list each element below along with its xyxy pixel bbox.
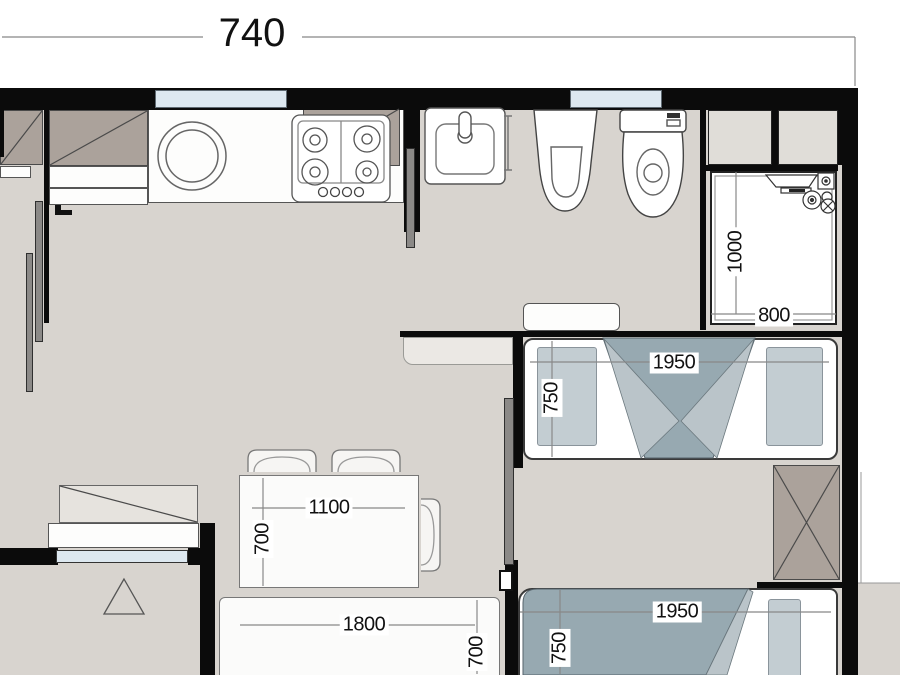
kitchen-upper-cabinet-left bbox=[49, 110, 148, 166]
dim-bed2-width: 750 bbox=[550, 629, 571, 667]
balcony-desk bbox=[59, 485, 198, 523]
wall-left-edge bbox=[0, 110, 4, 157]
wardrobe-x bbox=[773, 465, 840, 580]
dim-shower-depth: 1000 bbox=[726, 228, 747, 277]
wall-bath-shower bbox=[700, 88, 706, 330]
dim-table-width: 700 bbox=[253, 520, 274, 558]
floor-plan: 740 1000 800 1950 750 1100 700 1800 700 … bbox=[0, 0, 900, 675]
sofa-bed bbox=[219, 597, 500, 675]
wall-left-partition bbox=[44, 110, 49, 323]
outside-lines bbox=[858, 472, 900, 583]
sliding-door-bath bbox=[406, 148, 415, 248]
dim-shower-width: 800 bbox=[755, 306, 793, 327]
wall-under-wardrobe bbox=[757, 582, 842, 588]
wall-top bbox=[0, 88, 858, 110]
night-shelf bbox=[523, 303, 620, 331]
dim-overall-width: 740 bbox=[207, 12, 298, 54]
kitchen-shelf-row1 bbox=[49, 166, 148, 188]
window-top-1 bbox=[155, 90, 287, 108]
left-room-shelf bbox=[0, 166, 31, 178]
floor-outside-right bbox=[858, 583, 900, 675]
kitchen-upper-cabinet-right bbox=[303, 108, 400, 166]
wall-right bbox=[842, 88, 858, 675]
dim-bed2-length: 1950 bbox=[653, 602, 702, 623]
dim-bed1-length: 1950 bbox=[650, 353, 699, 374]
bed2-pillow bbox=[768, 599, 801, 675]
dim-bed1-width: 750 bbox=[542, 379, 563, 417]
duct-shaft-right bbox=[778, 110, 838, 165]
wall-niche bbox=[499, 570, 513, 591]
left-room-cabinet bbox=[0, 110, 43, 165]
wall-shower-band bbox=[703, 165, 838, 171]
bed1-pillow-right bbox=[766, 347, 823, 446]
window-top-2 bbox=[570, 90, 662, 108]
wall-duct-cap bbox=[838, 110, 842, 165]
window-sill-band bbox=[48, 523, 199, 548]
wall-bedroom1 bbox=[513, 331, 523, 468]
hall-shelf bbox=[403, 337, 513, 365]
wall-bath-bottom bbox=[400, 331, 858, 337]
wall-balcony-left bbox=[0, 548, 58, 565]
window-balcony bbox=[56, 550, 188, 563]
sliding-door-leftroom-1 bbox=[35, 201, 43, 342]
dim-sofa-width: 700 bbox=[467, 633, 488, 671]
wall-duct-divider bbox=[772, 110, 778, 165]
dim-sofa-length: 1800 bbox=[340, 615, 389, 636]
kitchen-shelf-row2 bbox=[49, 188, 148, 205]
dim-table-length: 1100 bbox=[305, 498, 352, 519]
sliding-door-leftroom-2 bbox=[26, 253, 33, 392]
wall-balcony-column bbox=[200, 523, 215, 675]
duct-shaft-left bbox=[708, 110, 772, 165]
sliding-door-bedroom1 bbox=[504, 398, 514, 565]
